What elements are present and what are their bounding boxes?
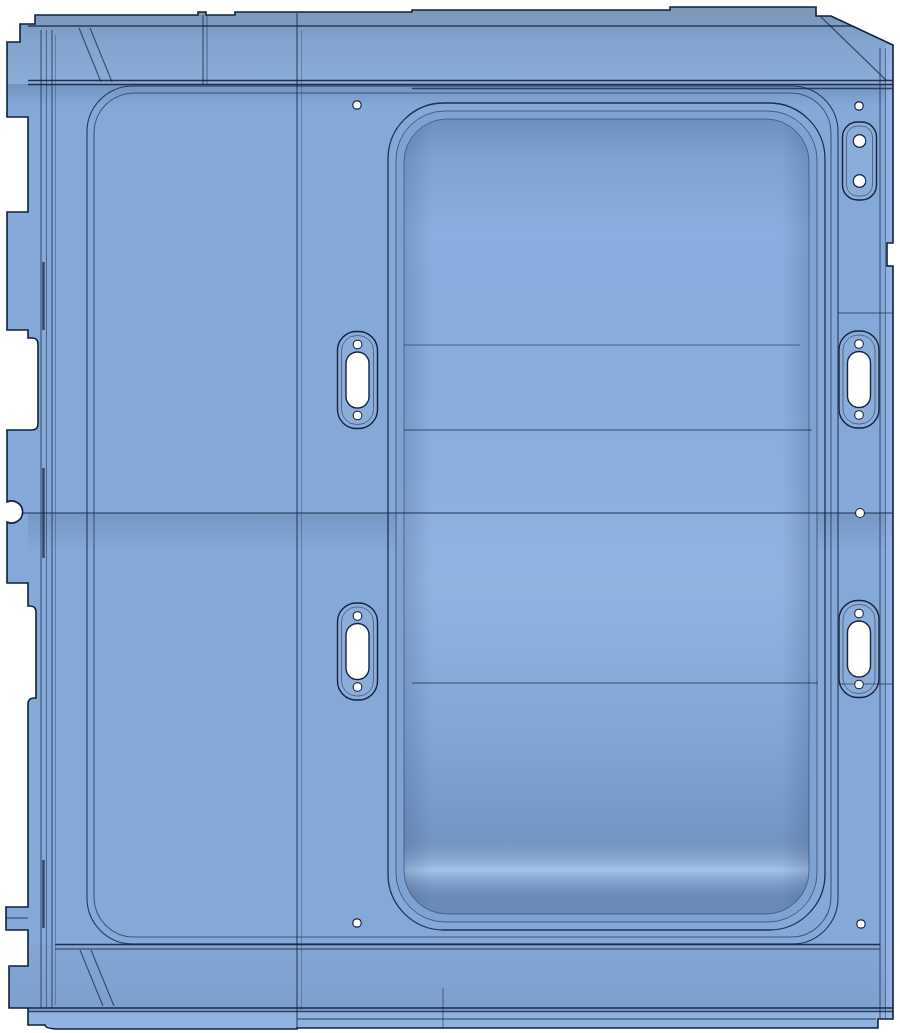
cad-canvas xyxy=(0,0,900,1033)
hole-boss[interactable] xyxy=(843,122,877,200)
rivet-hole[interactable] xyxy=(353,919,361,927)
slot-cutout[interactable] xyxy=(848,352,871,408)
boss-rivet-hole[interactable] xyxy=(353,683,362,692)
slot-cutout[interactable] xyxy=(346,624,369,680)
boss-rivet-hole[interactable] xyxy=(855,411,864,420)
boss-rivet-hole[interactable] xyxy=(855,680,864,689)
top-lip-face xyxy=(0,0,900,26)
slot-cutout[interactable] xyxy=(848,621,871,677)
cad-viewport[interactable] xyxy=(0,0,900,1033)
slot-cutout[interactable] xyxy=(346,352,369,408)
recess-panel[interactable] xyxy=(388,103,825,930)
bottom-lip-face xyxy=(0,1012,900,1033)
boss-bolt-hole[interactable] xyxy=(853,175,866,188)
rivet-hole[interactable] xyxy=(855,102,863,110)
right-edge-strip xyxy=(886,45,894,1020)
boss-rivet-hole[interactable] xyxy=(855,340,864,349)
boss-rivet-hole[interactable] xyxy=(855,609,864,618)
rivet-hole[interactable] xyxy=(353,101,361,109)
rivet-hole[interactable] xyxy=(857,920,865,928)
rivet-hole[interactable] xyxy=(856,509,865,518)
bottom-rail-face[interactable] xyxy=(0,944,900,1012)
recess-floor-shading-h xyxy=(404,119,809,914)
boss-rivet-hole[interactable] xyxy=(353,411,362,420)
boss-rivet-hole[interactable] xyxy=(353,340,362,349)
boss-rivet-hole[interactable] xyxy=(353,612,362,621)
boss-bolt-hole[interactable] xyxy=(853,135,866,148)
